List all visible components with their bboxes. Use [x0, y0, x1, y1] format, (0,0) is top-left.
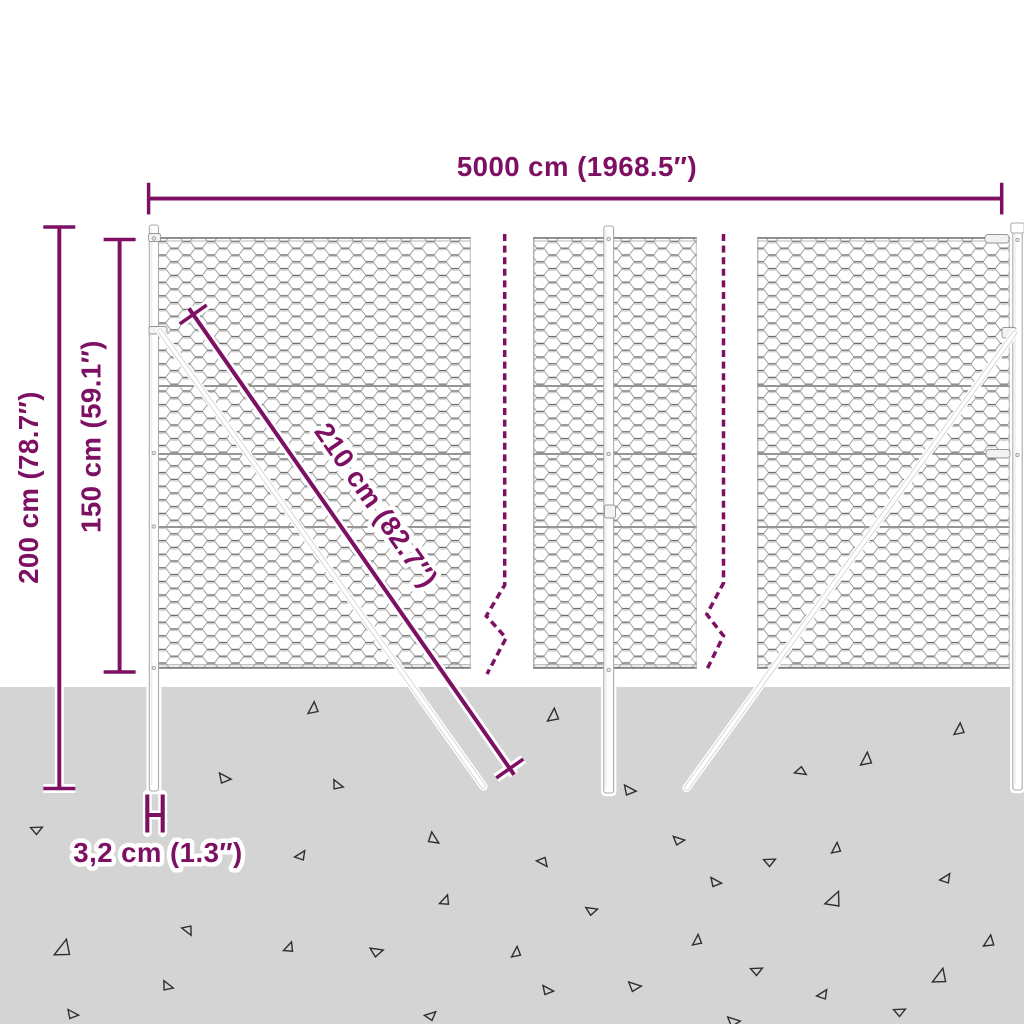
svg-text:5000 cm (1968.5″): 5000 cm (1968.5″) — [457, 151, 697, 182]
svg-text:150 cm (59.1″): 150 cm (59.1″) — [76, 340, 107, 533]
svg-text:3,2 cm (1.3″): 3,2 cm (1.3″) — [73, 837, 242, 868]
svg-text:200 cm (78.7″): 200 cm (78.7″) — [13, 391, 44, 584]
